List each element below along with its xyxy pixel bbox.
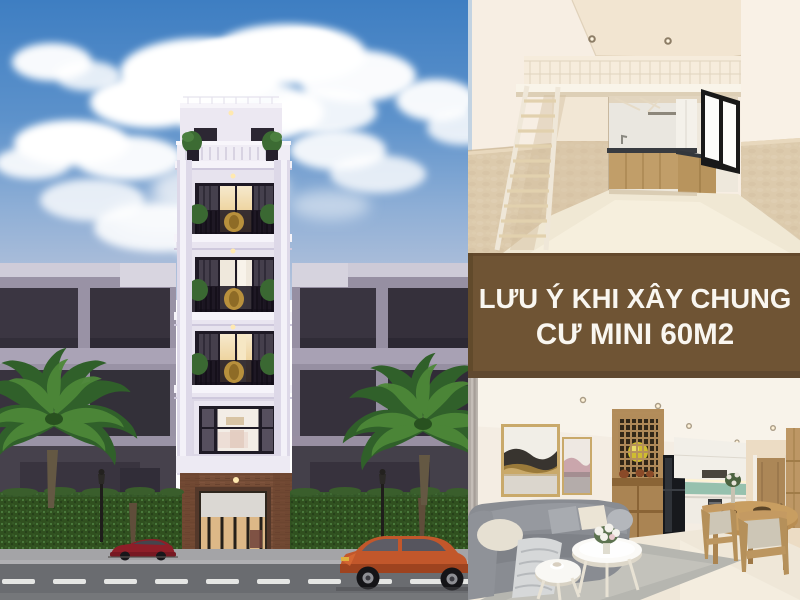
svg-text:CƯ MINI 60M2: CƯ MINI 60M2: [536, 318, 734, 351]
svg-text:LƯU Ý KHI XÂY CHUNG: LƯU Ý KHI XÂY CHUNG: [479, 283, 792, 314]
